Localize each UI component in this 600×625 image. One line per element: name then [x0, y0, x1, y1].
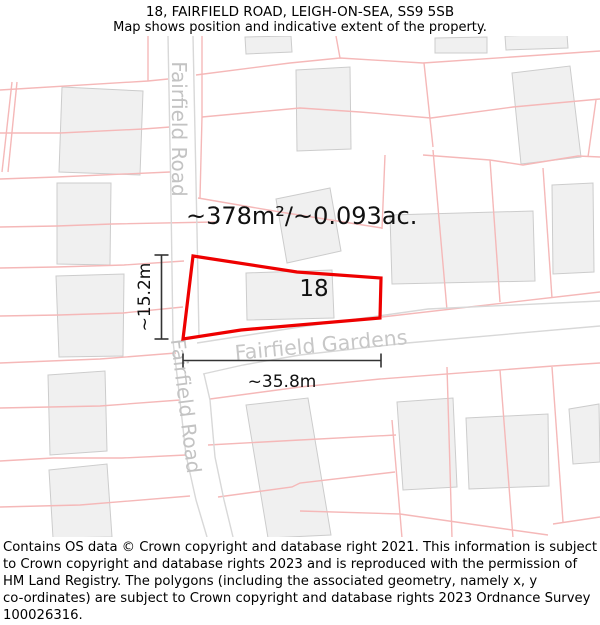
building	[552, 183, 594, 274]
building	[569, 404, 600, 464]
building	[49, 464, 112, 537]
dim-width-label: ~35.8m	[248, 372, 317, 392]
plot-number-label: 18	[299, 276, 328, 302]
parcel-line	[2, 82, 12, 172]
map-svg: Fairfield RoadFairfield RoadFairfield Ga…	[0, 36, 600, 537]
building	[435, 37, 487, 53]
street-label-fairfield-road-bottom: Fairfield Road	[166, 337, 206, 474]
map-header: 18, FAIRFIELD ROAD, LEIGH-ON-SEA, SS9 5S…	[0, 0, 600, 36]
road-line	[193, 36, 199, 338]
building	[246, 398, 331, 537]
map-canvas: Fairfield RoadFairfield RoadFairfield Ga…	[0, 36, 600, 537]
parcel-line	[382, 292, 600, 317]
parcel-line	[0, 455, 186, 461]
building	[56, 274, 124, 357]
footer-line: Contains OS data © Crown copyright and d…	[3, 539, 600, 556]
parcel-line	[553, 517, 600, 524]
copyright-footer: Contains OS data © Crown copyright and d…	[0, 537, 600, 625]
building	[466, 414, 549, 489]
dim-height-label: ~15.2m	[135, 263, 155, 332]
page-subtitle: Map shows position and indicative extent…	[0, 20, 600, 36]
parcel-line	[423, 155, 600, 165]
parcel-line	[336, 36, 340, 58]
street-label-fairfield-road-top: Fairfield Road	[167, 61, 191, 196]
area-label: ~378m²/~0.093ac.	[186, 202, 417, 230]
parcel-line	[588, 100, 596, 157]
parcel-line	[543, 168, 552, 298]
parcel-line	[200, 117, 202, 198]
parcel-line	[552, 367, 563, 522]
building	[512, 66, 581, 164]
building	[48, 371, 107, 455]
footer-line: 100026316.	[3, 607, 600, 624]
parcel-line	[8, 82, 17, 172]
footer-line: to Crown copyright and database rights 2…	[3, 556, 600, 573]
footer-line: HM Land Registry. The polygons (includin…	[3, 573, 600, 590]
page-title: 18, FAIRFIELD ROAD, LEIGH-ON-SEA, SS9 5S…	[0, 0, 600, 20]
parcel-line	[424, 63, 433, 147]
street-label-fairfield-gardens: Fairfield Gardens	[234, 325, 409, 365]
footer-line: co-ordinates) are subject to Crown copyr…	[3, 590, 600, 607]
building	[245, 36, 292, 54]
building	[505, 36, 568, 50]
